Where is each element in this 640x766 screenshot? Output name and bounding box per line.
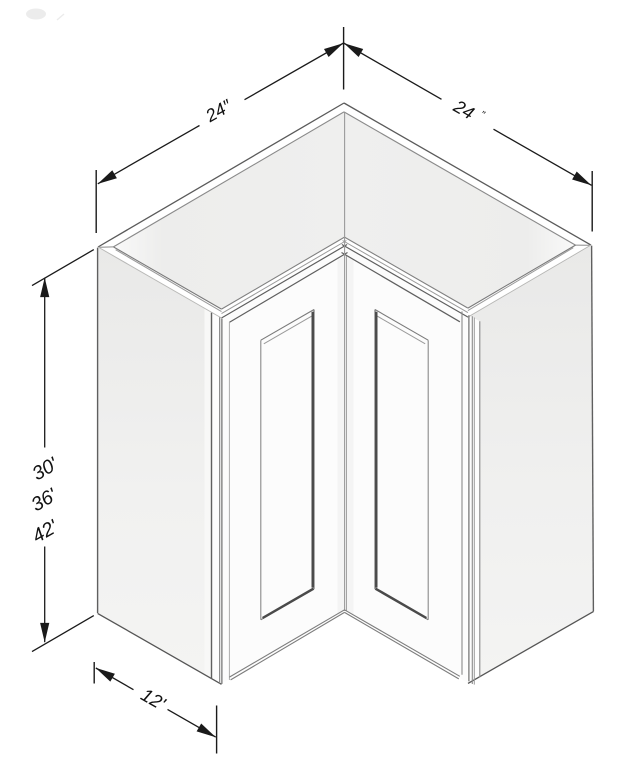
svg-text:36': 36': [27, 484, 61, 516]
svg-text:42': 42': [28, 515, 62, 547]
svg-text:″: ″: [478, 109, 487, 121]
svg-text:24: 24: [449, 96, 477, 124]
svg-text:12': 12': [138, 684, 171, 715]
svg-text:30': 30': [28, 453, 62, 485]
svg-text:24″: 24″: [201, 95, 235, 126]
